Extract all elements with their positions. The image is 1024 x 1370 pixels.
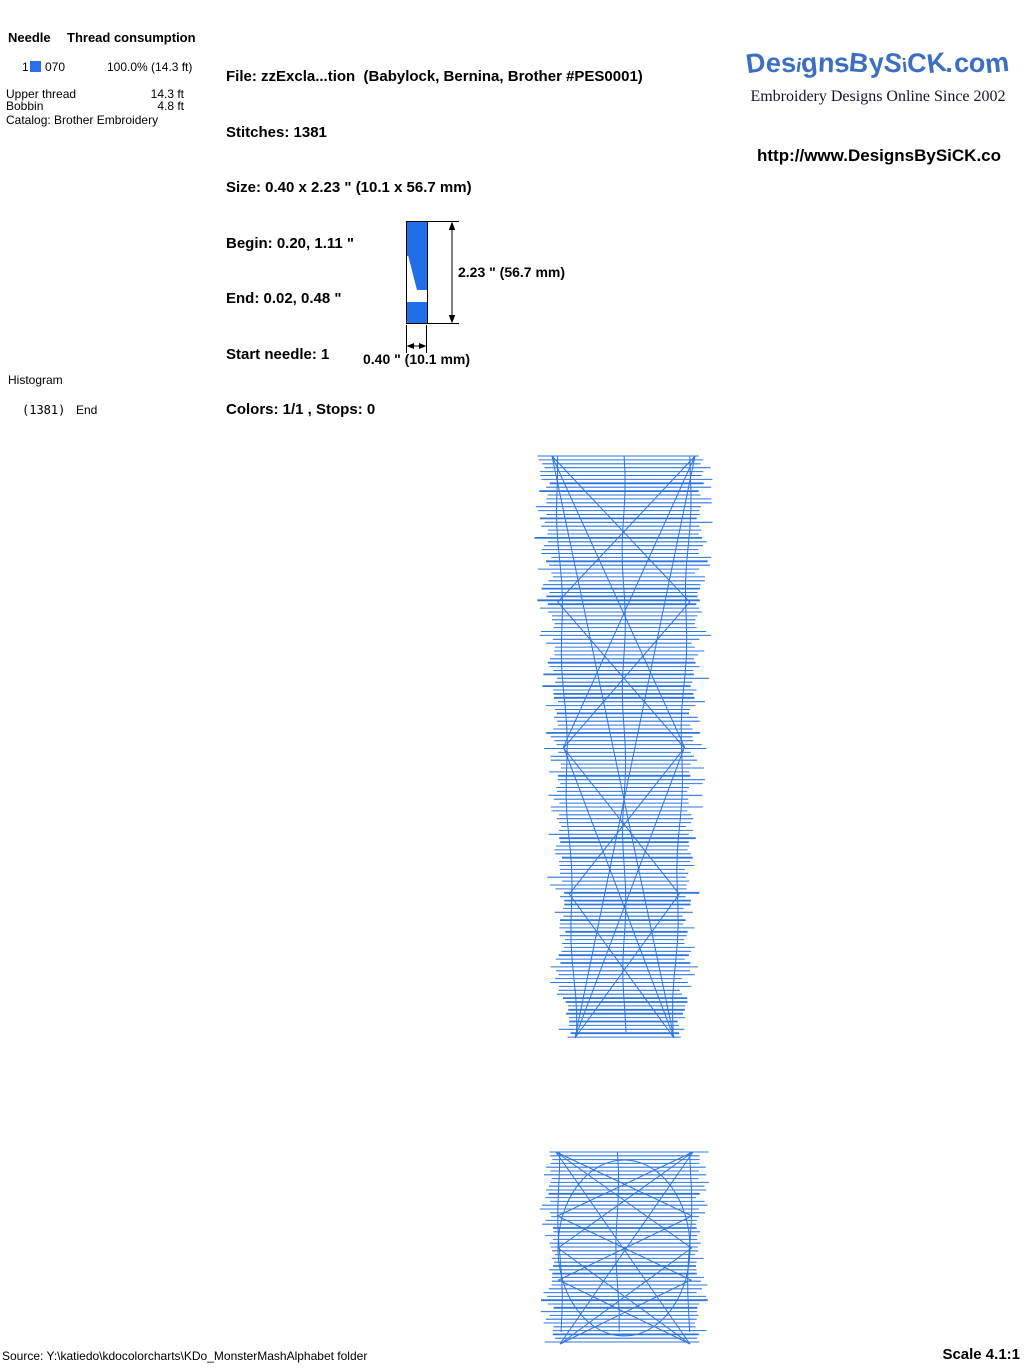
scale-label: Scale 4.1:1 (942, 1346, 1020, 1363)
print-preview-page: Needle Thread consumption 1 070 100.0% (… (0, 0, 1024, 1370)
stitch-canvas (0, 0, 1024, 1370)
source-path: Source: Y:\katiedo\kdocolorcharts\KDo_Mo… (2, 1349, 367, 1363)
